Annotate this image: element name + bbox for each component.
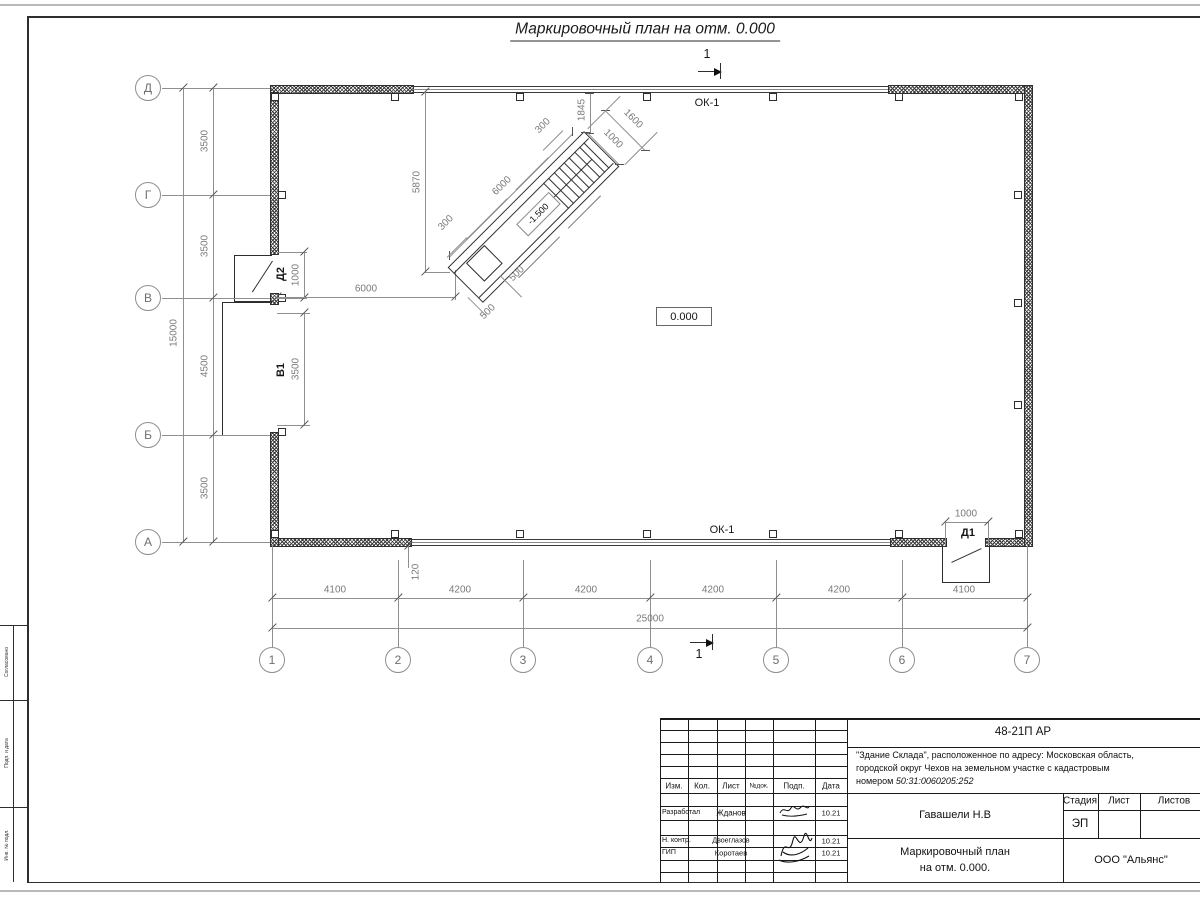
section-mark-bottom: 1 <box>696 647 703 661</box>
grid-axis-circle-v: В <box>135 285 161 311</box>
frame-left <box>27 16 29 883</box>
frame-bottom <box>27 882 1200 884</box>
titleblock-line <box>660 754 848 755</box>
approver-name: Гавашели Н.В <box>919 809 991 821</box>
sheet-bottom-edge <box>0 890 1200 892</box>
description-prefix: номером <box>856 776 896 786</box>
grid-axis-circle-a: А <box>135 529 161 555</box>
axis-line <box>162 542 270 543</box>
dim-text-left: 3500 <box>200 477 211 499</box>
strip-label-bottom: Инв. № подл. <box>4 829 10 860</box>
level-mark-box: 0.000 <box>656 307 712 326</box>
signature-icon <box>777 802 811 818</box>
dim-text-left: 3500 <box>200 235 211 257</box>
grid-axis-circle-g: Г <box>135 182 161 208</box>
grid-axis-circle-1: 1 <box>259 647 285 673</box>
project-description-line2: городской округ Чехов на земельном участ… <box>856 763 1110 773</box>
dim-tick <box>581 132 590 133</box>
titleblock-line <box>660 872 848 873</box>
column-mark <box>278 428 286 436</box>
column-mark <box>278 191 286 199</box>
stair-level-mark: -1.500 <box>516 192 561 237</box>
doc-number: 48-21П АР <box>995 726 1051 738</box>
titleblock-line <box>660 778 848 779</box>
titleblock-line <box>847 838 1200 839</box>
dim-text-d1-width: 1000 <box>955 509 977 520</box>
axis-line <box>162 88 270 89</box>
column-mark <box>769 93 777 101</box>
axis-line <box>162 435 270 436</box>
wall-segment <box>270 538 412 547</box>
row-date: 10.21 <box>822 849 841 858</box>
column-mark <box>895 530 903 538</box>
dim-line-left-segments <box>213 88 214 542</box>
titleblock-line <box>660 860 848 861</box>
col-header-list: Лист <box>722 782 739 791</box>
row-date: 10.21 <box>822 837 841 846</box>
strip-label-middle: Подп. и дата <box>4 738 10 767</box>
column-mark <box>895 93 903 101</box>
column-mark <box>271 93 279 101</box>
grid-axis-circle-2: 2 <box>385 647 411 673</box>
titleblock-line <box>660 793 1200 794</box>
column-mark <box>516 530 524 538</box>
dim-text-120: 120 <box>411 564 422 581</box>
page-title: Маркировочный план на отм. 0.000 <box>510 21 780 42</box>
stage-value: ЭП <box>1072 818 1089 830</box>
axis-line <box>398 560 399 647</box>
column-mark <box>1014 191 1022 199</box>
row-role: ГИП <box>662 849 676 856</box>
section-mark-top: 1 <box>704 47 711 61</box>
dim-tick <box>585 93 594 94</box>
dim-leader-120 <box>408 546 409 568</box>
dim-text-bottom-total: 25000 <box>636 614 664 625</box>
dim-line-d1 <box>945 522 989 523</box>
titleblock-line <box>1098 793 1099 838</box>
project-description-line1: "Здание Склада", расположенное по адресу… <box>856 750 1134 760</box>
axis-line <box>776 560 777 647</box>
stair-direction-line <box>550 159 593 202</box>
column-mark <box>1014 299 1022 307</box>
row-name: Коротаев <box>715 849 747 858</box>
column-mark <box>391 93 399 101</box>
dim-text-bottom: 4200 <box>575 585 597 596</box>
dim-text-1000: 1000 <box>601 127 625 151</box>
titleblock-line <box>660 766 848 767</box>
dim-tick <box>300 294 309 303</box>
titleblock-line <box>660 730 848 731</box>
dim-text-v1-width: 3500 <box>291 358 302 380</box>
dim-text-bottom: 4200 <box>702 585 724 596</box>
titleblock-line <box>660 820 848 821</box>
wall-segment <box>270 92 279 255</box>
column-mark <box>1015 530 1023 538</box>
axis-line <box>523 560 524 647</box>
cadastral-number: 50:31:0060205:252 <box>896 776 974 786</box>
ramp-slope-line <box>568 195 601 228</box>
dim-text-bottom: 4100 <box>953 585 975 596</box>
drawing-sheet: Согласовано Подп. и дата Инв. № подл. Ма… <box>0 0 1200 900</box>
signature-icon <box>775 828 815 864</box>
titleblock-line <box>660 742 848 743</box>
sheet-label: Лист <box>1108 796 1130 807</box>
window-label-bottom: ОК-1 <box>710 524 735 536</box>
stair-ramp: -1.500 <box>448 131 620 303</box>
dim-text-left: 4500 <box>200 355 211 377</box>
column-mark <box>391 530 399 538</box>
dim-text-interior: 6000 <box>355 284 377 295</box>
dim-line-d2 <box>304 252 305 298</box>
titleblock-line <box>660 806 848 807</box>
row-role: Разработал <box>662 809 700 816</box>
grid-axis-circle-4: 4 <box>637 647 663 673</box>
column-mark <box>516 93 524 101</box>
dim-text-500: 500 <box>478 302 498 322</box>
dim-line-interior <box>277 297 455 298</box>
titleblock-line <box>660 718 1200 720</box>
axis-line <box>162 195 270 196</box>
row-name: Жданов <box>716 809 746 818</box>
dim-text-left-total: 15000 <box>169 319 180 347</box>
dim-line-300 <box>543 130 564 151</box>
dim-text-1845: 1845 <box>577 99 588 121</box>
dim-line-bottom-total <box>272 628 1027 629</box>
stage-label: Стадия <box>1063 796 1097 807</box>
project-description-line3: номером 50:31:0060205:252 <box>856 776 973 786</box>
column-mark <box>271 530 279 538</box>
dim-tick <box>641 150 650 151</box>
door-label-d1: Д1 <box>961 527 975 539</box>
extension-line <box>945 522 946 545</box>
section-arrow-bar <box>720 63 721 79</box>
col-header-ndok: №док. <box>749 783 768 790</box>
column-mark <box>769 530 777 538</box>
porch-d2 <box>234 255 272 302</box>
drawing-title-line1: Маркировочный план <box>900 846 1010 858</box>
company-name: ООО "Альянс" <box>1094 854 1168 866</box>
extension-line <box>587 95 620 128</box>
wall-segment <box>888 85 1033 94</box>
titleblock-line <box>660 835 848 836</box>
dim-tick <box>984 518 993 527</box>
column-mark <box>1015 93 1023 101</box>
dim-text-bottom: 4200 <box>449 585 471 596</box>
axis-line <box>902 560 903 647</box>
extension-line <box>425 272 450 273</box>
window-band-bottom <box>410 539 890 547</box>
extension-line <box>988 522 989 545</box>
dim-tick <box>615 164 624 165</box>
dim-tick <box>451 293 460 302</box>
window-label-top: ОК-1 <box>695 97 720 109</box>
porch-d1 <box>942 545 990 583</box>
grid-axis-circle-d: Д <box>135 75 161 101</box>
sheet-top-edge <box>0 4 1200 6</box>
titleblock-line <box>660 847 848 848</box>
column-mark <box>643 530 651 538</box>
col-header-data: Дата <box>822 782 840 791</box>
dim-text-bottom: 4100 <box>324 585 346 596</box>
dim-text-5870: 5870 <box>412 171 423 193</box>
titleblock-line <box>847 747 1200 748</box>
dim-text-d2-width: 1000 <box>291 264 302 286</box>
dim-tick <box>572 127 573 136</box>
dim-text-300: 300 <box>436 213 456 233</box>
wall-segment <box>890 538 947 547</box>
grid-axis-circle-b: Б <box>135 422 161 448</box>
sheets-label: Листов <box>1158 796 1191 807</box>
axis-line <box>162 298 270 299</box>
dim-text-1600: 1600 <box>621 107 645 131</box>
col-header-kol: Кол. <box>694 782 710 791</box>
titleblock-line <box>1140 793 1141 838</box>
dim-line-left-total <box>183 88 184 542</box>
dim-text-300: 300 <box>533 116 553 136</box>
col-header-podp: Подп. <box>783 782 804 791</box>
grid-axis-circle-7: 7 <box>1014 647 1040 673</box>
grid-axis-circle-6: 6 <box>889 647 915 673</box>
titleblock-line <box>1063 810 1200 811</box>
dim-text-bottom: 4200 <box>828 585 850 596</box>
wall-segment <box>1024 85 1033 547</box>
row-role: Н. контр. <box>662 837 691 844</box>
dim-text-left: 3500 <box>200 130 211 152</box>
strip-label-top: Согласовано <box>4 647 10 677</box>
dim-line-5870 <box>425 92 426 272</box>
dim-tick <box>300 248 309 257</box>
axis-line <box>650 560 651 647</box>
row-name: Двоеглазов <box>712 838 749 845</box>
section-arrow-bar <box>712 634 713 650</box>
col-header-izm: Изм. <box>665 782 682 791</box>
frame-top <box>27 16 1200 18</box>
strip-divider-vertical <box>13 625 14 882</box>
grid-axis-circle-5: 5 <box>763 647 789 673</box>
column-mark <box>1014 401 1022 409</box>
door-label-d2: Д2 <box>275 267 287 281</box>
row-date: 10.21 <box>822 809 841 818</box>
drawing-title-line2: на отм. 0.000. <box>920 862 990 874</box>
grid-axis-circle-3: 3 <box>510 647 536 673</box>
gate-label-v1: В1 <box>275 363 287 377</box>
column-mark <box>643 93 651 101</box>
dim-line-v1 <box>304 313 305 425</box>
porch-v1 <box>222 302 272 436</box>
